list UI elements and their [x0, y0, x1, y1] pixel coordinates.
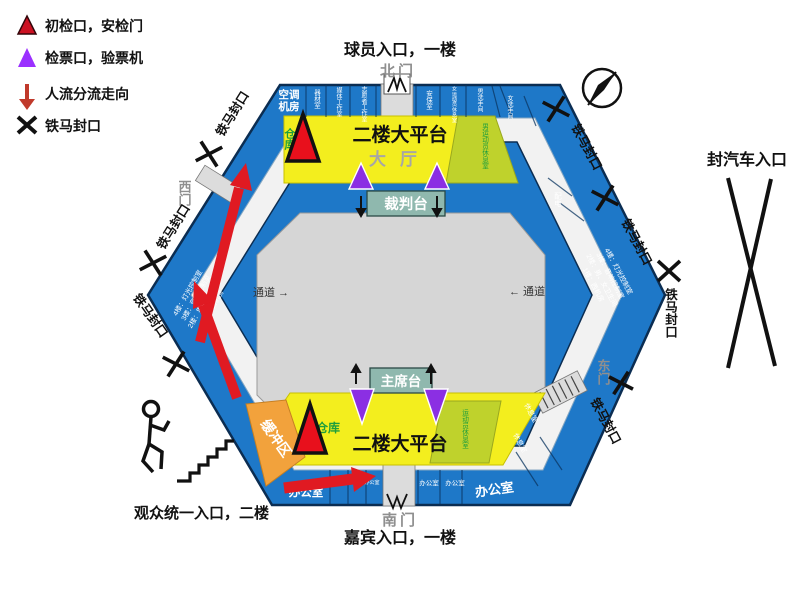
office-tiny-3: 办公室: [445, 478, 465, 487]
corridor-label-east: ← 通道: [509, 284, 545, 298]
barrier-label-nw1-group: 铁马封口: [213, 88, 252, 138]
hall-label: 大厅: [369, 149, 431, 169]
legend-ticket-check-label: 检票口，验票机: [45, 50, 143, 66]
legend-first-check-label: 初检口，安检门: [45, 18, 143, 34]
west-gate-label: 西门: [177, 180, 192, 207]
legend: 初检口，安检门 检票口，验票机 人流分流走向 铁马封口: [18, 16, 143, 134]
audience-entrance-label: 观众统一入口，二楼: [134, 504, 269, 522]
corridor-label-west: 通道 →: [253, 285, 289, 299]
legend-first-check-icon: [18, 16, 36, 34]
barrier-label-east-vertical: 铁马封口: [663, 287, 677, 339]
room-women-washroom: 女洗手间: [506, 94, 513, 120]
office-tiny-2: 办公室: [419, 478, 439, 487]
room-men-washroom: 男洗手间: [476, 88, 483, 113]
legend-barrier-icon: [18, 117, 36, 133]
compass-icon: [583, 69, 621, 107]
upper-platform-label: 二楼大平台: [352, 123, 447, 146]
room-power: 配电: [553, 192, 562, 208]
legend-barrier-label: 铁马封口: [45, 118, 101, 134]
car-entrance-label: 封汽车入口: [707, 150, 787, 169]
rostrum-label: 主席台: [381, 373, 422, 389]
player-entrance-label: 球员入口，一楼: [344, 40, 456, 59]
map-canvas: 空调机房 器材室 媒体工作室 志愿者工作室 安保室 女运动员休息室 男洗手间 女…: [0, 0, 800, 599]
room-women-lounge: 女运动员休息室: [451, 85, 457, 123]
room-hvac: 空调机房: [279, 88, 300, 113]
legend-flow-icon: [19, 84, 35, 110]
south-gate-label: 南门: [382, 511, 418, 529]
south-gate-corridor: [383, 464, 415, 506]
room-volunteer-studio: 志愿者工作室: [360, 85, 367, 122]
east-gate-label: 东门: [596, 358, 611, 386]
barrier-label-nw1: 铁马封口: [213, 88, 252, 138]
legend-flow-label: 人流分流走向: [45, 86, 129, 102]
car-entrance-blocked-icon: [728, 178, 775, 368]
referee-stand-label: 裁判台: [384, 195, 428, 213]
north-gate-label: 北门: [380, 62, 416, 80]
room-media-studio: 媒体工作室: [335, 86, 342, 117]
stadium-map: 空调机房 器材室 媒体工作室 志愿者工作室 安保室 女运动员休息室 男洗手间 女…: [0, 0, 800, 599]
guest-entrance-label: 嘉宾入口，一楼: [343, 528, 456, 547]
legend-ticket-check-icon: [18, 48, 36, 67]
lower-platform-label: 二楼大平台: [352, 432, 447, 455]
